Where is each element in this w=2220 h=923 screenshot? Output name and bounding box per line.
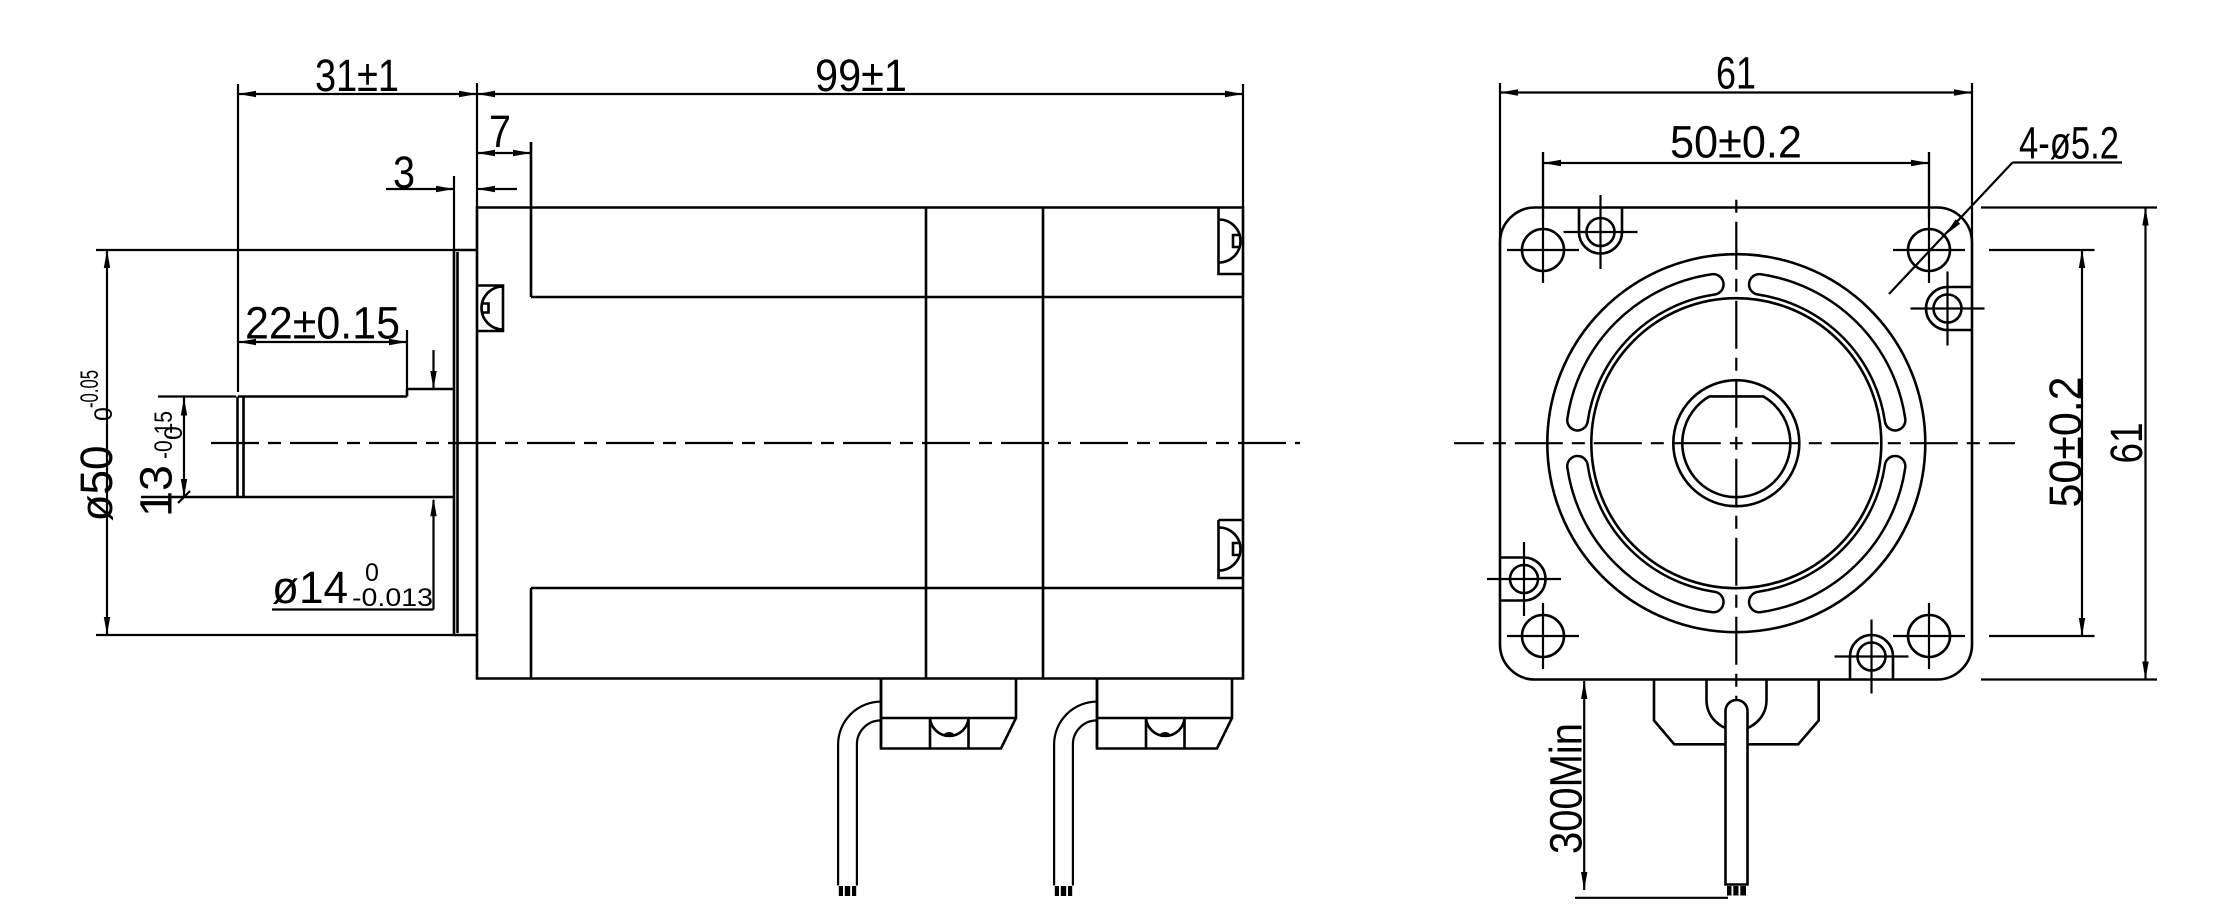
svg-text:7: 7 bbox=[489, 106, 511, 157]
svg-text:3: 3 bbox=[393, 147, 415, 198]
svg-text:22±0.15: 22±0.15 bbox=[245, 298, 400, 349]
svg-text:300Min: 300Min bbox=[1541, 723, 1592, 854]
svg-text:13: 13 bbox=[131, 465, 182, 517]
svg-text:ø14: ø14 bbox=[272, 562, 348, 613]
svg-text:0: 0 bbox=[365, 559, 379, 587]
svg-text:4-ø5.2: 4-ø5.2 bbox=[2019, 118, 2119, 169]
svg-text:61: 61 bbox=[2101, 423, 2152, 464]
svg-text:ø50: ø50 bbox=[71, 446, 122, 522]
svg-text:31±1: 31±1 bbox=[315, 50, 399, 101]
svg-text:50±0.2: 50±0.2 bbox=[2040, 377, 2091, 508]
svg-text:-0.05: -0.05 bbox=[76, 370, 104, 408]
svg-text:61: 61 bbox=[1716, 48, 1756, 99]
svg-text:50±0.2: 50±0.2 bbox=[1670, 117, 1802, 168]
svg-text:99±1: 99±1 bbox=[815, 50, 907, 101]
svg-text:-0.013: -0.013 bbox=[352, 584, 433, 612]
svg-text:0: 0 bbox=[90, 407, 118, 421]
svg-text:-0.15: -0.15 bbox=[150, 411, 178, 459]
